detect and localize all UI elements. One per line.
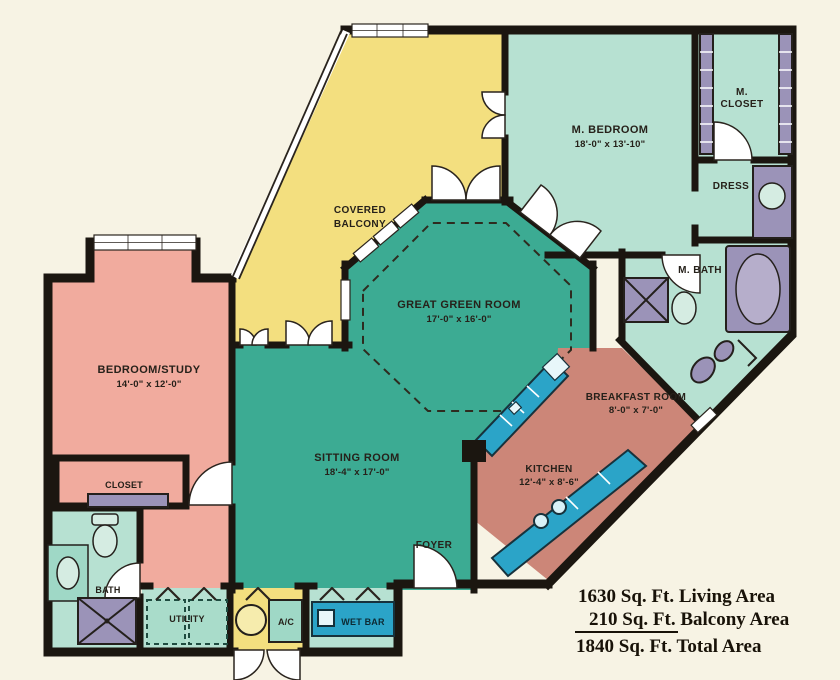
bathtub-icon [726, 246, 790, 332]
great-room-label: GREAT GREEN ROOM [397, 299, 521, 311]
dress-label: DRESS [713, 181, 749, 192]
bedroom-study-label: BEDROOM/STUDY [98, 364, 201, 376]
stove-burner-icon [534, 514, 548, 528]
balcony-area-text: 210 Sq. Ft. Balcony Area [589, 609, 790, 630]
kitchen-label: KITCHEN [525, 464, 572, 475]
dress-vanity-icon [753, 166, 792, 238]
kitchen-dims: 12'-4" x 8'-6" [519, 477, 579, 488]
closet-shelf-icon [88, 494, 168, 507]
bedroom-study-dims: 14'-0" x 12'-0" [116, 379, 181, 390]
master-closet-label-line2: CLOSET [721, 99, 764, 110]
sink-icon [672, 292, 696, 324]
window [341, 280, 350, 320]
stove-burner-icon [552, 500, 566, 514]
shower-icon [78, 598, 136, 644]
bath-label: BATH [95, 585, 120, 595]
breakfast-room-dims: 8'-0" x 7'-0" [609, 405, 663, 416]
master-bedroom-dims: 18'-0" x 13'-10" [575, 139, 646, 150]
total-area-text: 1840 Sq. Ft. Total Area [576, 636, 762, 657]
toilet-icon [92, 514, 118, 557]
utility-label: UTILITY [169, 614, 204, 624]
water-heater-icon [236, 605, 266, 635]
ac-label: A/C [278, 617, 294, 627]
breakfast-room-label: BREAKFAST ROOM [586, 392, 687, 403]
floor-plan-page: M. BEDROOM 18'-0" x 13'-10" M. CLOSET DR… [0, 0, 840, 680]
covered-balcony-label-line2: BALCONY [334, 219, 386, 230]
wet-bar-label: WET BAR [341, 617, 385, 627]
sitting-room-dims: 18'-4" x 17'-0" [324, 467, 389, 478]
sitting-room-label: SITTING ROOM [314, 452, 399, 464]
wall-corner-block [462, 440, 486, 462]
floor-plan: M. BEDROOM 18'-0" x 13'-10" M. CLOSET DR… [0, 0, 840, 680]
master-bath-label: M. BATH [678, 265, 722, 276]
covered-balcony-label-line1: COVERED [334, 205, 386, 216]
foyer-label: FOYER [416, 540, 453, 551]
living-area-text: 1630 Sq. Ft. Living Area [578, 586, 776, 607]
bath-sink-icon [48, 545, 88, 601]
bar-sink-icon [318, 610, 334, 626]
master-bedroom-label: M. BEDROOM [572, 124, 649, 136]
area-summary: 1630 Sq. Ft. Living Area 210 Sq. Ft. Bal… [575, 586, 790, 657]
great-room-dims: 17'-0" x 16'-0" [426, 314, 491, 325]
closet-label: CLOSET [105, 480, 143, 490]
master-closet-label-line1: M. [736, 87, 748, 98]
shower-icon [624, 278, 668, 322]
